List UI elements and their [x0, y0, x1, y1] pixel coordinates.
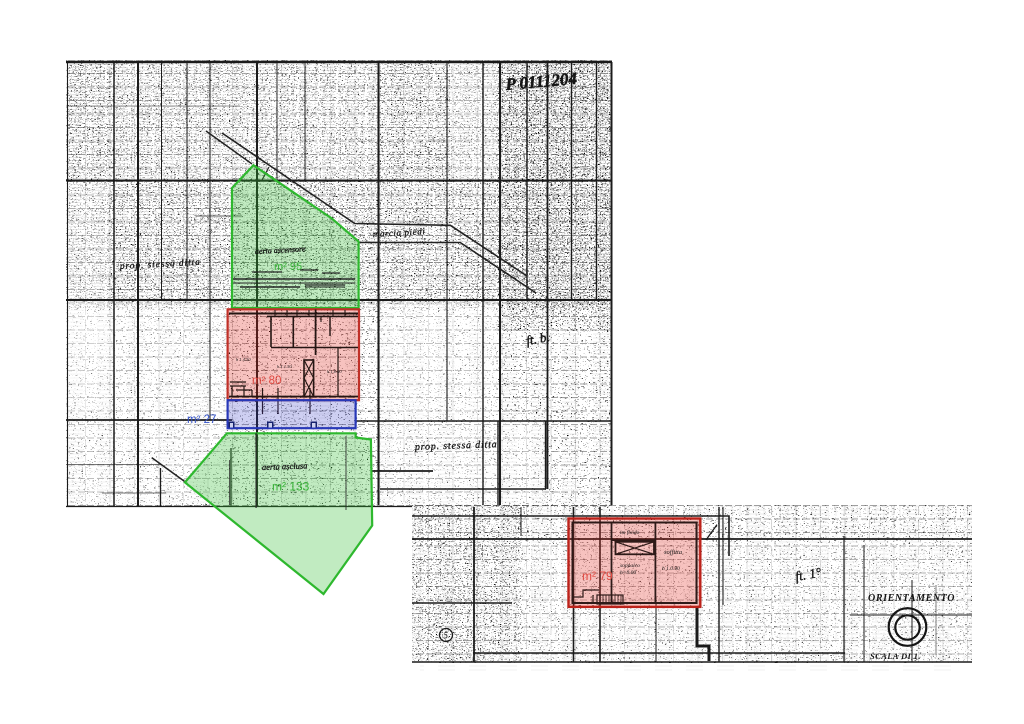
svg-text:m² 79: m² 79 — [582, 569, 613, 583]
svg-text:aerta asclusa: aerta asclusa — [262, 460, 308, 472]
svg-text:h 1.4.50: h 1.4.50 — [236, 357, 251, 362]
svg-text:m² 133: m² 133 — [272, 480, 310, 494]
svg-text:im fondo: im fondo — [620, 529, 640, 536]
svg-text:h=0.00: h=0.00 — [620, 570, 636, 576]
svg-text:h 1.1.50: h 1.1.50 — [277, 364, 292, 369]
svg-text:h 1.8.00: h 1.8.00 — [327, 369, 342, 374]
svg-text:m² 27: m² 27 — [187, 414, 216, 426]
svg-text:soppalco: soppalco — [620, 563, 640, 569]
svg-text:SCALA DI 1.: SCALA DI 1. — [870, 651, 921, 661]
svg-text:soffitta: soffitta — [664, 549, 682, 556]
svg-text:5: 5 — [444, 631, 449, 641]
svg-text:m² 80: m² 80 — [252, 375, 281, 387]
svg-text:ORIENTAMENTO: ORIENTAMENTO — [868, 593, 955, 604]
svg-text:m² 95: m² 95 — [274, 261, 302, 273]
svg-text:h 1.0.90: h 1.0.90 — [662, 566, 680, 572]
